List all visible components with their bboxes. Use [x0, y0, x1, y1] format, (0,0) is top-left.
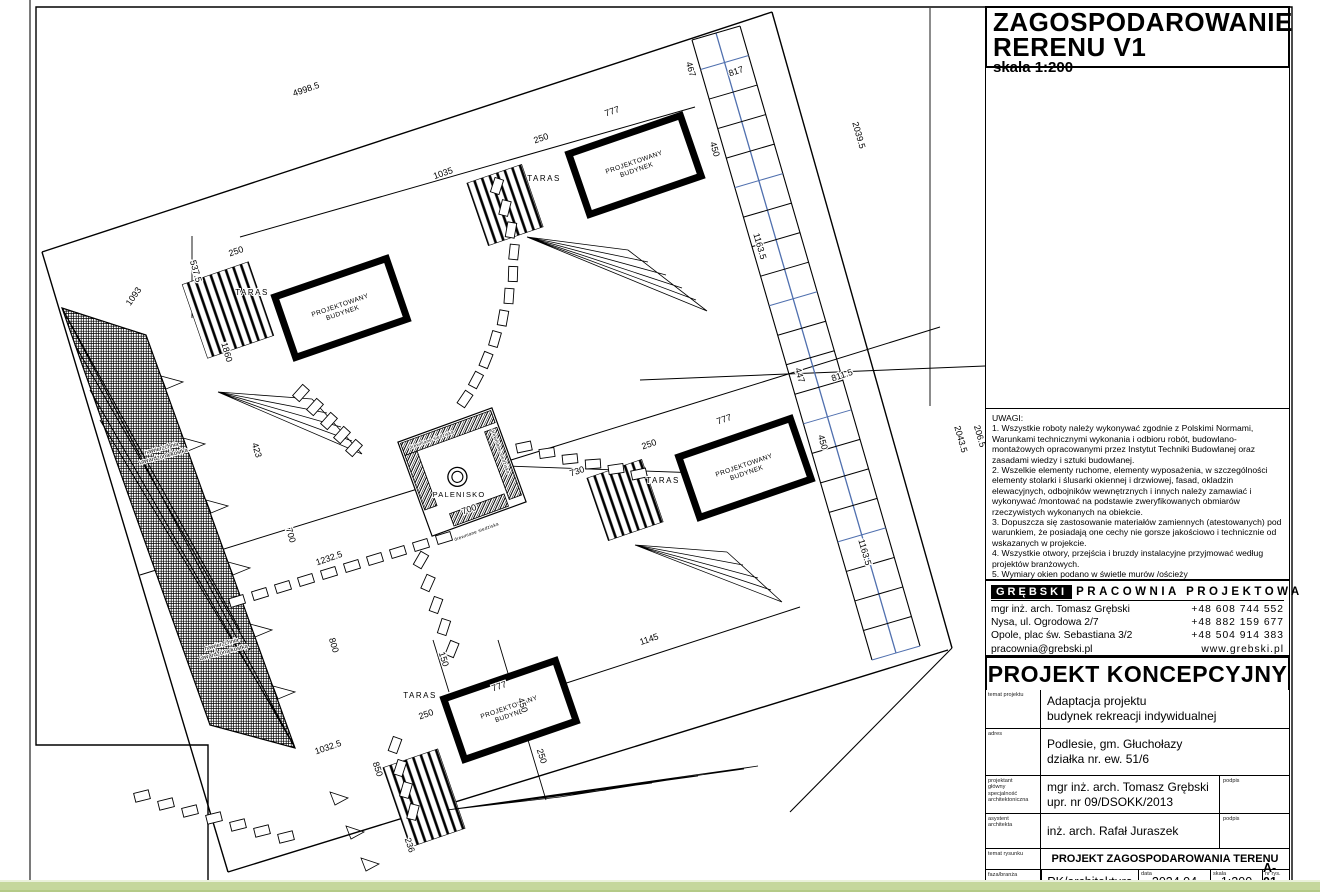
stepping-stone — [298, 574, 315, 587]
note-item: 2. Wszelkie elementy ruchome, elementy w… — [992, 465, 1283, 517]
stepping-stone — [230, 819, 247, 831]
titleblock-row-rysunek: temat rysunku PROJEKT ZAGOSPODAROWANIA T… — [985, 849, 1290, 870]
proposed-building: PROJEKTOWANYBUDYNEK — [275, 259, 407, 358]
proposed-buildings: PROJEKTOWANYBUDYNEKPROJEKTOWANYBUDYNEKPR… — [275, 116, 811, 760]
drawing-sheet-viewport: PROJEKTOWANYBUDYNEKPROJEKTOWANYBUDYNEKPR… — [0, 0, 1320, 892]
dimension-label: 1232.5 — [314, 549, 343, 567]
paved-driveway — [62, 308, 295, 748]
parking-stall-line — [829, 498, 877, 512]
stepping-stone — [254, 825, 271, 837]
stepping-stone — [497, 310, 508, 326]
parking-stall-line — [769, 292, 817, 306]
dimension-label: 450 — [816, 434, 830, 451]
parking-stall-line — [743, 203, 791, 217]
stepping-stone — [334, 426, 351, 443]
stepping-stone — [457, 390, 473, 407]
stepping-stone — [321, 567, 338, 580]
stepping-stone — [437, 618, 450, 635]
dimension-label: 1163.5 — [856, 538, 873, 567]
studio-row: mgr inż. arch. Tomasz Grębski +48 608 74… — [991, 603, 1284, 616]
stepping-stone — [413, 551, 428, 568]
studio-row: Opole, plac św. Sebastiana 3/2 +48 504 9… — [991, 629, 1284, 642]
studio-website: www.grebski.pl — [1201, 643, 1284, 656]
stepping-stone — [469, 371, 484, 388]
studio-logo: GRĘBSKI — [991, 585, 1072, 599]
stepping-stone — [516, 441, 533, 453]
stepping-stone — [390, 546, 407, 559]
studio-phone: +48 504 914 383 — [1191, 629, 1284, 642]
note-item: 1. Wszystkie roboty należy wykonywać zgo… — [992, 423, 1283, 465]
stepping-stone — [158, 798, 175, 810]
stepping-stone — [252, 588, 269, 601]
stepping-stone — [504, 288, 514, 304]
stepping-stone — [346, 439, 363, 456]
dimension-label: 250 — [535, 747, 549, 764]
dimension-label: 250 — [227, 244, 244, 258]
bottom-green-bar — [0, 880, 1320, 892]
field-label: temat rysunku — [986, 849, 1041, 869]
stepping-stone — [252, 588, 269, 601]
stepping-stone — [390, 546, 407, 559]
dimension-label: 800 — [327, 637, 341, 654]
stepping-stone — [497, 310, 508, 326]
stepping-stone — [334, 426, 351, 443]
stepping-stone — [504, 288, 514, 304]
titleblock-row-adres: adres Podlesie, gm. Głuchołazy działka n… — [985, 729, 1290, 776]
dimension-label: 777 — [603, 104, 620, 118]
proposed-building: PROJEKTOWANYBUDYNEK — [679, 419, 811, 518]
stepping-stone — [505, 222, 516, 238]
studio-address: Nysa, ul. Ogrodowa 2/7 — [991, 616, 1099, 629]
stepping-stone — [275, 581, 292, 594]
stepping-stone — [509, 244, 520, 260]
parking-stall-line — [726, 144, 774, 158]
parking-stall-line — [863, 616, 911, 630]
parking-stall-line — [761, 262, 809, 276]
project-address: działka nr. ew. 51/6 — [1047, 752, 1283, 767]
dimension-label: 4998.5 — [291, 80, 320, 98]
stepping-stone — [182, 805, 199, 817]
notes-box: UWAGI: 1. Wszystkie roboty należy wykony… — [985, 408, 1290, 580]
dimension-label: 700 — [284, 527, 298, 544]
stepping-stone — [388, 736, 402, 753]
field-label: adres — [986, 729, 1041, 775]
studio-email: pracownia@grebski.pl — [991, 643, 1092, 656]
stepping-stone — [508, 266, 518, 281]
stepping-stone — [608, 464, 624, 475]
stepping-stone — [158, 798, 175, 810]
designer-name: mgr inż. arch. Tomasz Grębski — [1047, 780, 1213, 795]
parking-strip — [692, 26, 920, 660]
signature-cell: podpis — [1219, 776, 1289, 813]
project-type-box: PROJEKT KONCEPCYJNY — [985, 656, 1290, 692]
stepping-stone — [539, 448, 555, 459]
assistant-name: inż. arch. Rafał Juraszek — [1047, 824, 1213, 839]
parking-stall-line — [803, 410, 851, 424]
taras-label: TARAS — [527, 174, 561, 183]
drawing-title-box: ZAGOSPODAROWANIE RERENU V1 skala 1:200 — [985, 6, 1290, 68]
stepping-stone — [585, 459, 601, 469]
stepping-stone — [479, 351, 493, 368]
studio-address: Opole, plac św. Sebastiana 3/2 — [991, 629, 1132, 642]
stepping-stone — [134, 790, 151, 802]
stepping-stone — [469, 371, 484, 388]
stepping-stone — [367, 553, 384, 566]
dimension-label: 730 — [568, 464, 585, 478]
note-item: 4. Wszystkie otwory, przejścia i bruzdy … — [992, 548, 1283, 569]
parking-stall-line — [778, 321, 826, 335]
stepping-stone — [489, 331, 502, 348]
stepping-stone — [509, 244, 520, 260]
stepping-stone — [182, 805, 199, 817]
field-label: projektant główny specjalność architekto… — [986, 776, 1041, 813]
signature-cell: podpis — [1219, 814, 1289, 848]
stepping-stone — [134, 790, 151, 802]
stepping-stone — [388, 736, 402, 753]
stepping-stone — [307, 398, 324, 415]
stepping-stone — [346, 439, 363, 456]
parking-stall-line — [821, 469, 869, 483]
studio-brand-row: GRĘBSKI PRACOWNIA PROJEKTOWA — [991, 583, 1284, 601]
titleblock-row-projektant: projektant główny specjalność architekto… — [985, 776, 1290, 814]
stepping-stone — [479, 351, 493, 368]
stepping-stone — [421, 574, 435, 591]
dimension-label: 1032.5 — [313, 738, 342, 756]
dimension-label: 250 — [417, 707, 434, 721]
stepping-stone — [421, 574, 435, 591]
stepping-stone — [562, 454, 578, 465]
stepping-stone — [505, 222, 516, 238]
panel-spacer — [985, 68, 1290, 408]
drawing-title-line2: RERENU V1 — [993, 35, 1288, 60]
stepping-stone — [278, 831, 295, 843]
dimension-label: 1145 — [638, 631, 660, 647]
field-label: asystent architekta — [986, 814, 1041, 848]
stepping-stone — [321, 412, 338, 429]
stepping-stone — [298, 574, 315, 587]
stepping-stone — [344, 560, 361, 573]
canvas-left-edge — [29, 0, 31, 880]
parking-stall-line — [786, 351, 834, 365]
designer-license: upr. nr 09/DSOKK/2013 — [1047, 795, 1213, 810]
dimension-label: 850 — [371, 760, 385, 777]
stepping-stone — [508, 266, 518, 281]
dimension-label: 777 — [715, 412, 732, 426]
studio-person: mgr inż. arch. Tomasz Grębski — [991, 603, 1130, 616]
palenisko-label: PALENISKO — [433, 490, 486, 499]
dimension-label: 450 — [708, 141, 722, 158]
stepping-stone — [254, 825, 271, 837]
stepping-stone — [429, 596, 443, 613]
parking-stall-line — [709, 85, 757, 99]
stepping-stone — [413, 539, 430, 552]
dimension-label: 2043.5 — [952, 425, 969, 454]
stepping-stone — [344, 560, 361, 573]
dimension-label: 817 — [727, 64, 744, 78]
dimension-label: 423 — [250, 442, 264, 459]
titleblock-row-temat: temat projektu Adaptacja projektu budyne… — [985, 690, 1290, 729]
dimension-label: 1093 — [124, 285, 144, 307]
proposed-building: PROJEKTOWANYBUDYNEK — [444, 661, 576, 760]
parking-stall-line — [855, 587, 903, 601]
project-subject: Adaptacja projektu — [1047, 694, 1283, 709]
stepping-stone — [413, 551, 428, 568]
parking-stall-line — [718, 115, 766, 129]
stepping-stone — [539, 448, 555, 459]
stepping-stone — [489, 331, 502, 348]
studio-phone: +48 882 159 677 — [1191, 616, 1284, 629]
note-item: 3. Dopuszcza się zastosowanie materiałów… — [992, 517, 1283, 548]
stepping-stone — [585, 459, 601, 469]
dimension-label: 537.5 — [188, 259, 204, 283]
project-subject: budynek rekreacji indywidualnej — [1047, 709, 1283, 724]
note-item: 5. Wymiary okien podano w świetle murów … — [992, 569, 1283, 579]
parking-stall-line — [735, 174, 783, 188]
stepping-stone — [608, 464, 624, 475]
field-label: temat projektu — [986, 690, 1041, 728]
taras-label: TARAS — [403, 691, 437, 700]
stepping-stone — [437, 618, 450, 635]
taras-label: TARAS — [235, 288, 269, 297]
dimension-label: 467 — [684, 61, 698, 78]
stepping-stone — [321, 412, 338, 429]
studio-block: GRĘBSKI PRACOWNIA PROJEKTOWA mgr inż. ar… — [985, 580, 1290, 656]
parking-stall-line — [692, 26, 740, 40]
stepping-stone — [321, 567, 338, 580]
proposed-building: PROJEKTOWANYBUDYNEK — [569, 116, 701, 215]
project-address: Podlesie, gm. Głuchołazy — [1047, 737, 1283, 752]
notes-heading: UWAGI: — [992, 413, 1283, 423]
stepping-stone — [278, 831, 295, 843]
stepping-stone — [307, 398, 324, 415]
dimension-label: 2039.5 — [850, 121, 867, 150]
studio-phone: +48 608 744 552 — [1191, 603, 1284, 616]
sheet-title: PROJEKT ZAGOSPODAROWANIA TERENU — [1041, 849, 1289, 869]
stepping-stone — [275, 581, 292, 594]
project-type-label: PROJEKT KONCEPCYJNY — [988, 661, 1288, 688]
stepping-stone — [429, 596, 443, 613]
stepping-stone — [230, 819, 247, 831]
stepping-stone — [562, 454, 578, 465]
stepping-stone — [457, 390, 473, 407]
taras-label: TARAS — [646, 476, 680, 485]
dimension-label: 250 — [532, 131, 549, 145]
studio-row: pracownia@grebski.pl www.grebski.pl — [991, 643, 1284, 656]
parking-stall-line — [872, 646, 920, 660]
titleblock-row-asystent: asystent architekta inż. arch. Rafał Jur… — [985, 814, 1290, 849]
stepping-stone — [413, 539, 430, 552]
stepping-stone — [516, 441, 533, 453]
dimension-label: 250 — [640, 437, 657, 451]
stepping-stone — [367, 553, 384, 566]
studio-row: Nysa, ul. Ogrodowa 2/7 +48 882 159 677 — [991, 616, 1284, 629]
studio-name: PRACOWNIA PROJEKTOWA — [1076, 586, 1303, 598]
